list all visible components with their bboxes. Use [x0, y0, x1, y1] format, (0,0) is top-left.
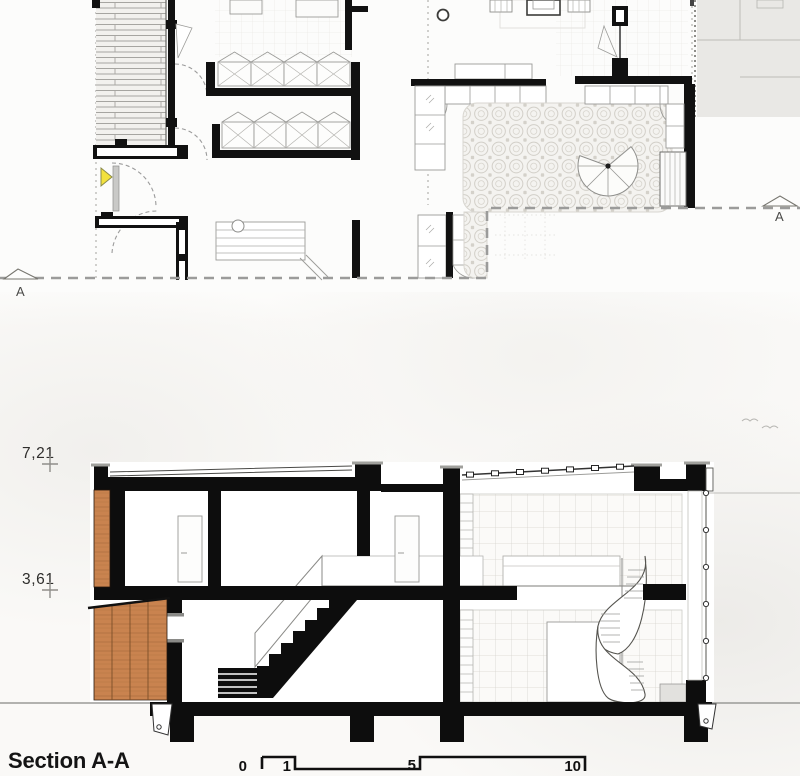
- scale-tick-10: 10: [564, 758, 581, 775]
- wall-interior-3: [443, 502, 460, 702]
- mezzanine-platform: [503, 556, 620, 586]
- parapet-mid-right: [634, 466, 660, 491]
- scale-tick-5: 5: [408, 757, 416, 774]
- cut-label-left: A: [16, 284, 25, 299]
- bird-marks: [742, 419, 778, 428]
- section-drawing: [0, 419, 800, 742]
- scale-tick-0: 0: [239, 758, 247, 775]
- adjacent-roof: [697, 0, 800, 117]
- foundation-pier: [440, 716, 464, 742]
- wall-stub: [345, 0, 352, 50]
- scale-bar: 0 1 5 10: [239, 757, 585, 775]
- wall-interior-2: [357, 487, 370, 556]
- floor-plan: [0, 0, 800, 292]
- wall-left-upper: [110, 477, 125, 600]
- cut-label-right: A: [775, 209, 784, 224]
- adjacent-building: [690, 0, 800, 117]
- deck-hatch: [92, 0, 166, 148]
- roof-upstand: [355, 464, 381, 491]
- foundation-pier: [350, 716, 374, 742]
- roof-slab: [107, 477, 358, 491]
- wall-stub: [352, 6, 368, 12]
- section-title: Section A-A: [8, 748, 130, 773]
- foundation-pier: [170, 716, 194, 742]
- wall-interior-1: [208, 490, 221, 586]
- scale-tick-1: 1: [283, 758, 291, 775]
- sideboard: [660, 152, 686, 206]
- step-platform: [660, 684, 686, 702]
- level-markers: 7,21 3,61: [22, 445, 58, 598]
- parapet-left: [94, 466, 108, 491]
- ground-slab: [150, 702, 712, 716]
- drawing-sheet: A A: [0, 0, 800, 776]
- parapet-right: [686, 464, 706, 491]
- entry-door-leaf: [113, 166, 119, 211]
- column: [438, 10, 449, 21]
- architectural-drawing: A A: [0, 0, 800, 776]
